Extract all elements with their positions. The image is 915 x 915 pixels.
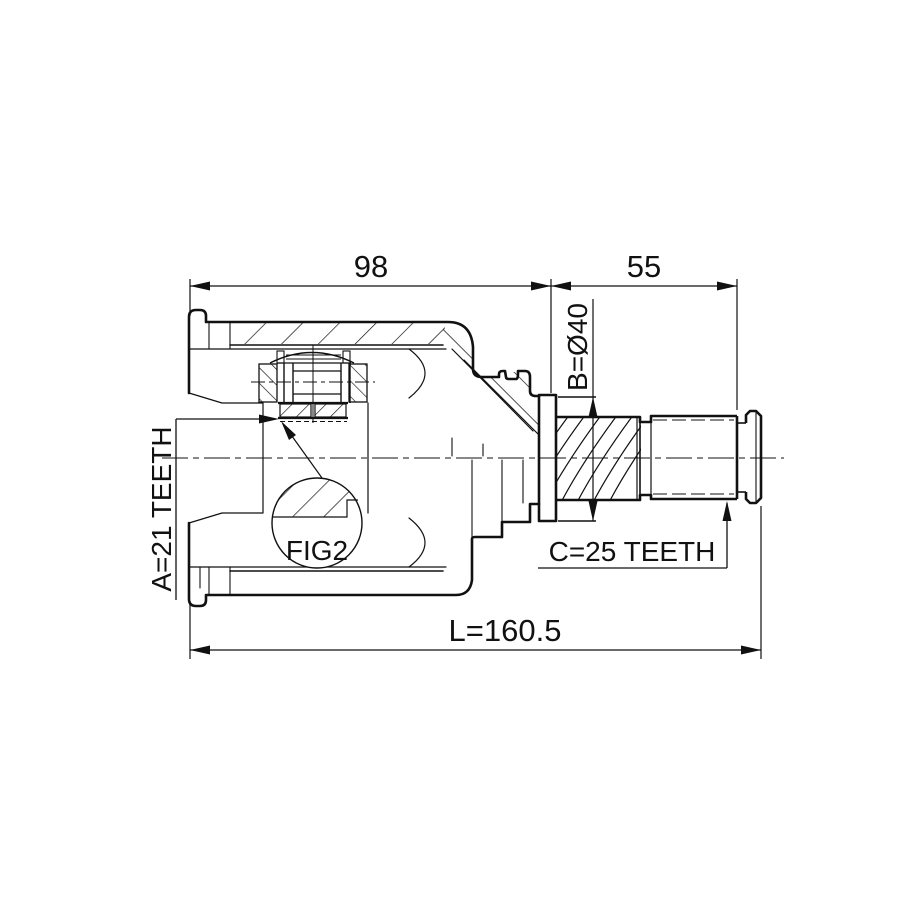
spline-section-right	[315, 404, 346, 417]
spline-section-left	[280, 404, 311, 417]
fig2-label: FIG2	[286, 535, 348, 566]
dim-c-spline-label: C=25 TEETH	[549, 536, 716, 567]
dim-a-spline-label: A=21 TEETH	[146, 426, 177, 591]
dim-overall-length-label: L=160.5	[449, 613, 562, 648]
cv-joint-technical-drawing: FIG2 98 55 B=Ø40 A=21 TEETH C=	[0, 0, 915, 915]
needle-roller-right	[349, 364, 367, 402]
dim-98-label: 98	[354, 249, 388, 284]
drawing-canvas: FIG2 98 55 B=Ø40 A=21 TEETH C=	[0, 0, 915, 915]
dim-55-label: 55	[627, 249, 661, 284]
needle-roller-left	[259, 364, 277, 402]
dim-b-diameter-label: B=Ø40	[562, 303, 593, 391]
